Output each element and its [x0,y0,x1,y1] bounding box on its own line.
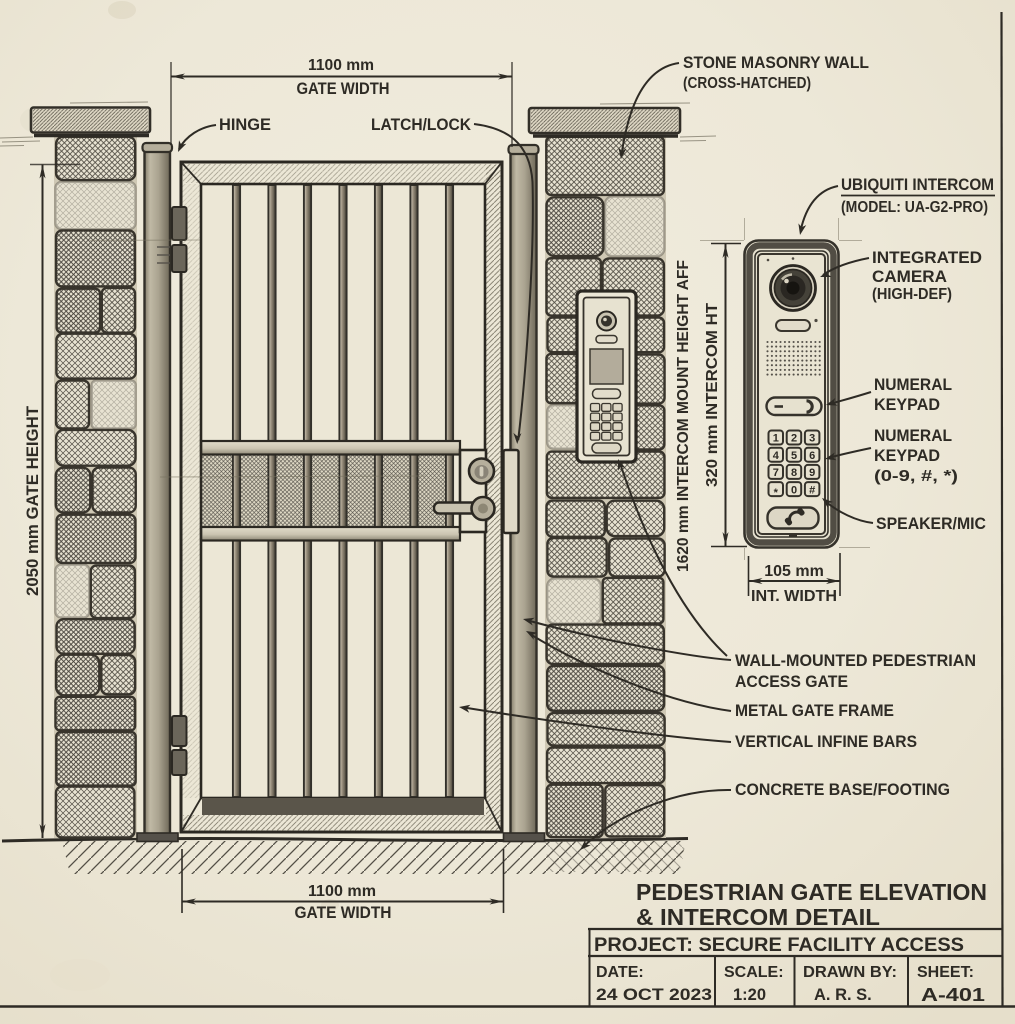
svg-text:GATE WIDTH: GATE WIDTH [297,80,390,98]
svg-text:(0-9, #, *): (0-9, #, *) [874,468,958,485]
svg-text:KEYPAD: KEYPAD [874,396,940,414]
svg-text:HINGE: HINGE [219,116,271,134]
svg-text:PROJECT: SECURE FACILITY ACCES: PROJECT: SECURE FACILITY ACCESS [594,935,964,956]
svg-text:*: * [774,487,779,499]
svg-text:A-401: A-401 [921,984,985,1005]
svg-text:CONCRETE BASE/FOOTING: CONCRETE BASE/FOOTING [735,781,950,799]
svg-text:LATCH/LOCK: LATCH/LOCK [371,116,471,134]
svg-text:0: 0 [791,484,797,496]
svg-text:(HIGH-DEF): (HIGH-DEF) [872,286,952,303]
svg-text:7: 7 [773,467,779,479]
svg-text:GATE WIDTH: GATE WIDTH [295,904,392,922]
svg-text:1620 mm INTERCOM MOUNT HEIGHT: 1620 mm INTERCOM MOUNT HEIGHT AFF [675,260,692,572]
svg-text:105 mm: 105 mm [764,563,824,580]
svg-text:INTEGRATED: INTEGRATED [872,249,982,267]
svg-text:8: 8 [791,467,797,479]
svg-text:WALL-MOUNTED PEDESTRIAN: WALL-MOUNTED PEDESTRIAN [735,652,976,670]
svg-text:1100 mm: 1100 mm [308,57,374,74]
svg-text:9: 9 [809,467,815,479]
svg-text:6: 6 [809,450,815,462]
svg-text:SCALE:: SCALE: [724,964,784,981]
svg-text:#: # [809,484,815,496]
svg-text:(CROSS-HATCHED): (CROSS-HATCHED) [683,75,811,92]
svg-text:3: 3 [809,433,815,445]
svg-text:VERTICAL INFINE BARS: VERTICAL INFINE BARS [735,733,917,751]
svg-text:SPEAKER/MIC: SPEAKER/MIC [876,515,986,533]
svg-text:CAMERA: CAMERA [872,268,947,286]
svg-text:SHEET:: SHEET: [917,964,974,981]
svg-text:1: 1 [773,433,779,445]
svg-text:A. R. S.: A. R. S. [814,986,872,1004]
svg-text:METAL GATE FRAME: METAL GATE FRAME [735,702,894,720]
svg-text:NUMERAL: NUMERAL [874,376,952,394]
svg-text:5: 5 [791,450,797,462]
svg-text:& INTERCOM DETAIL: & INTERCOM DETAIL [636,904,880,930]
svg-text:UBIQUITI INTERCOM: UBIQUITI INTERCOM [841,176,994,194]
svg-text:2050 mm GATE HEIGHT: 2050 mm GATE HEIGHT [24,406,42,596]
svg-text:INT. WIDTH: INT. WIDTH [751,588,837,605]
svg-text:4: 4 [773,450,780,462]
svg-text:PEDESTRIAN GATE ELEVATION: PEDESTRIAN GATE ELEVATION [636,879,987,905]
svg-text:1:20: 1:20 [733,986,766,1004]
svg-text:24 OCT 2023: 24 OCT 2023 [596,986,712,1004]
svg-text:ACCESS GATE: ACCESS GATE [735,673,848,691]
svg-text:STONE MASONRY WALL: STONE MASONRY WALL [683,54,869,72]
svg-text:KEYPAD: KEYPAD [874,447,940,465]
svg-text:NUMERAL: NUMERAL [874,427,952,445]
svg-text:320 mm INTERCOM HT: 320 mm INTERCOM HT [704,303,721,487]
svg-text:DATE:: DATE: [596,964,644,981]
svg-text:(MODEL: UA-G2-PRO): (MODEL: UA-G2-PRO) [841,199,988,216]
svg-text:2: 2 [791,433,797,445]
svg-text:1100 mm: 1100 mm [308,883,376,900]
svg-text:DRAWN BY:: DRAWN BY: [803,964,897,981]
